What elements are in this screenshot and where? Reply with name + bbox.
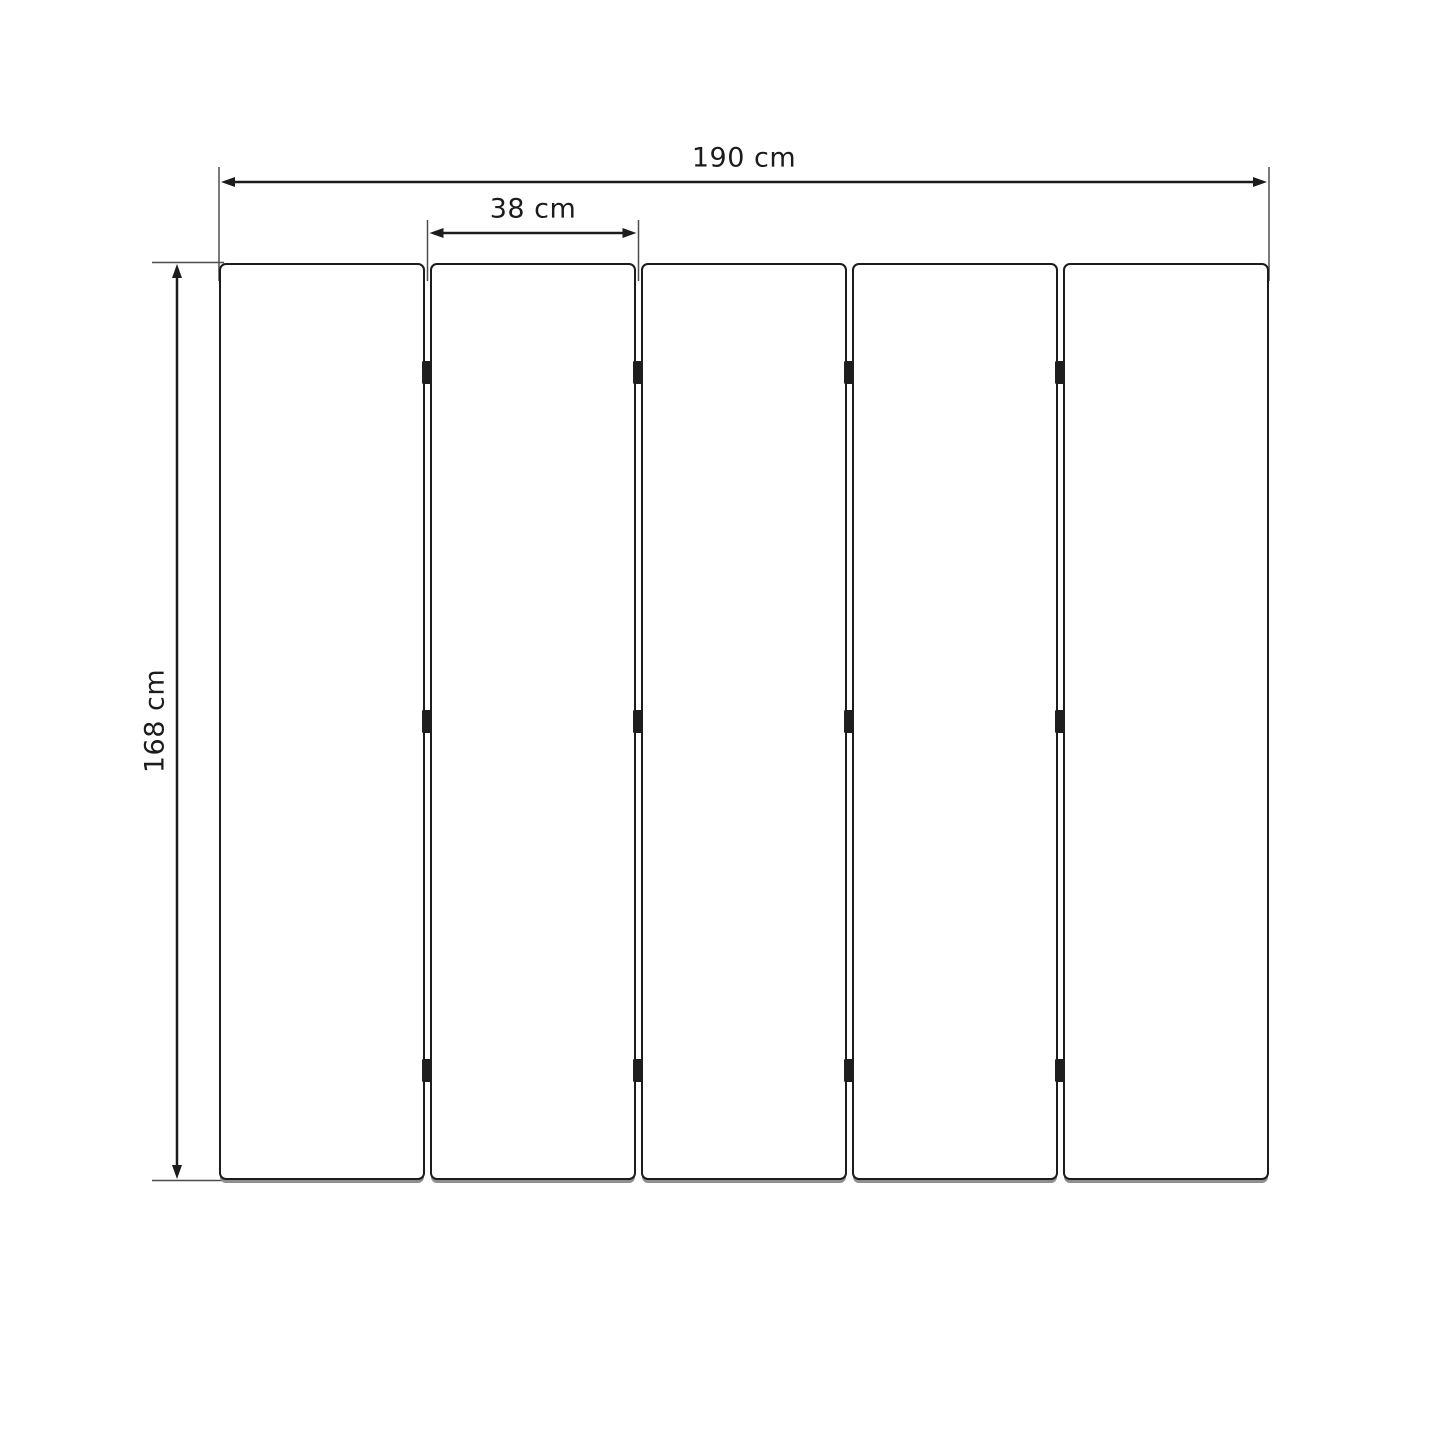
arrow-down-icon: [172, 1165, 182, 1179]
panel-3: [641, 263, 847, 1180]
arrow-right-icon: [623, 228, 637, 238]
arrow-left-icon: [221, 177, 235, 187]
diagram-canvas: 190 cm 38 cm 168 cm: [0, 0, 1445, 1445]
panel-2: [430, 263, 636, 1180]
hinge-gap4-middle-icon: [1055, 710, 1065, 733]
hinge-gap3-top-icon: [844, 361, 854, 384]
hinge-gap1-bottom-icon: [422, 1059, 432, 1082]
hinge-gap3-middle-icon: [844, 710, 854, 733]
arrow-up-icon: [172, 264, 182, 278]
hinge-gap4-top-icon: [1055, 361, 1065, 384]
panel-width-label: 38 cm: [490, 196, 577, 223]
panel-5: [1063, 263, 1269, 1180]
hinge-gap1-top-icon: [422, 361, 432, 384]
hinge-gap4-bottom-icon: [1055, 1059, 1065, 1082]
hinge-gap1-middle-icon: [422, 710, 432, 733]
panel-4: [852, 263, 1058, 1180]
hinge-gap3-bottom-icon: [844, 1059, 854, 1082]
hinge-gap2-bottom-icon: [633, 1059, 643, 1082]
arrow-right-icon: [1253, 177, 1267, 187]
panel-1: [219, 263, 425, 1180]
hinge-gap2-top-icon: [633, 361, 643, 384]
total-width-label: 190 cm: [692, 145, 796, 172]
height-label: 168 cm: [142, 669, 169, 773]
hinge-gap2-middle-icon: [633, 710, 643, 733]
arrow-left-icon: [430, 228, 444, 238]
